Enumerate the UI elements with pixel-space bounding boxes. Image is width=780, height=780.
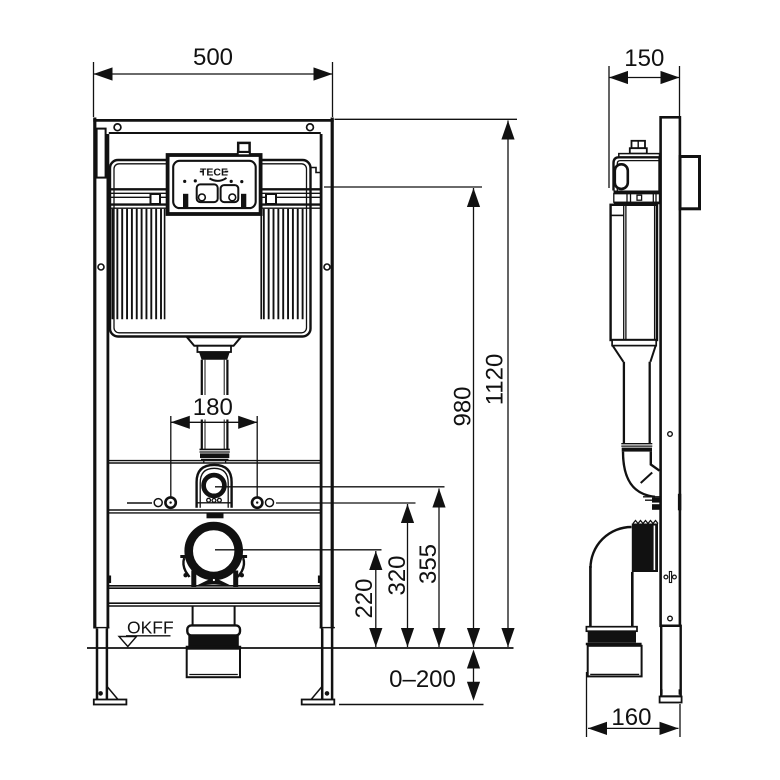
svg-text:500: 500: [193, 44, 233, 71]
svg-text:TECE: TECE: [200, 167, 228, 179]
svg-text:180: 180: [193, 394, 233, 421]
svg-text:160: 160: [611, 704, 651, 731]
svg-text:220: 220: [351, 578, 378, 618]
svg-text:980: 980: [450, 386, 477, 426]
svg-text:150: 150: [624, 45, 664, 72]
svg-text:320: 320: [384, 555, 411, 595]
svg-text:355: 355: [415, 544, 442, 584]
svg-text:0–200: 0–200: [389, 666, 456, 693]
svg-text:1120: 1120: [482, 354, 509, 406]
svg-text:OKFF: OKFF: [127, 618, 174, 638]
